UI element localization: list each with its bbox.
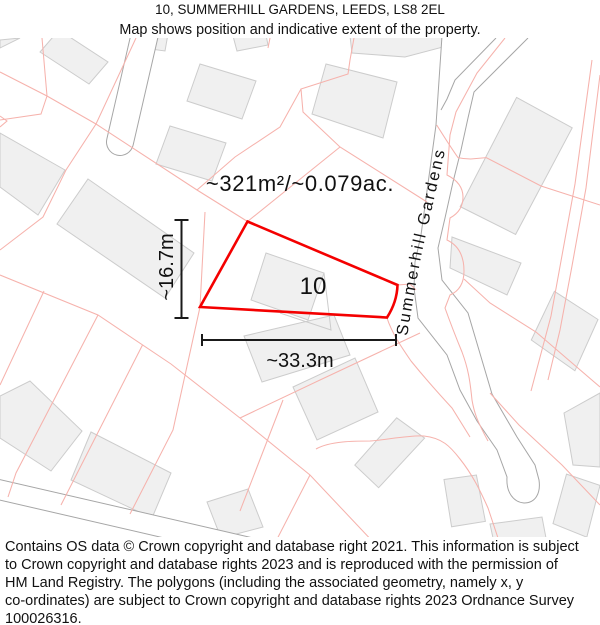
svg-text:~33.3m: ~33.3m (266, 350, 333, 372)
svg-text:10, SUMMERHILL GARDENS, LEEDS,: 10, SUMMERHILL GARDENS, LEEDS, LS8 2EL (155, 2, 445, 17)
svg-text:~16.7m: ~16.7m (156, 233, 178, 300)
svg-text:HM Land Registry. The polygons: HM Land Registry. The polygons (includin… (5, 575, 524, 591)
svg-text:~321m²/~0.079ac.: ~321m²/~0.079ac. (206, 171, 394, 196)
svg-text:to Crown copyright and databas: to Crown copyright and database rights 2… (5, 557, 559, 573)
svg-text:10: 10 (300, 273, 327, 300)
svg-text:Contains OS data © Crown copyr: Contains OS data © Crown copyright and d… (5, 539, 579, 555)
svg-text:Map shows position and indicat: Map shows position and indicative extent… (119, 22, 480, 38)
svg-text:co-ordinates) are subject to C: co-ordinates) are subject to Crown copyr… (5, 593, 575, 609)
svg-text:100026316.: 100026316. (5, 611, 82, 625)
